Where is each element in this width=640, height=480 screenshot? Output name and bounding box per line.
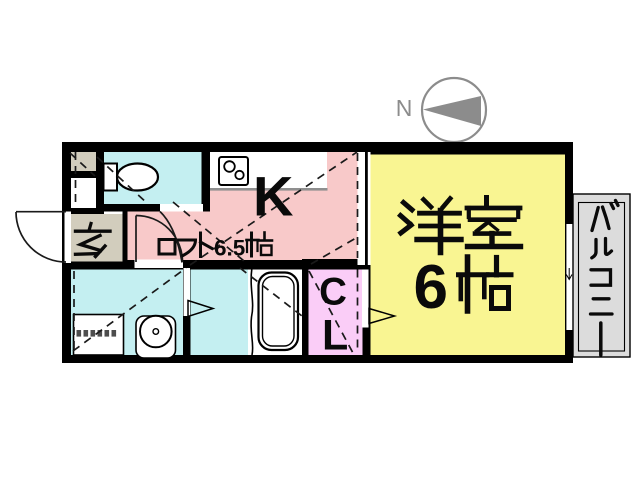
svg-text:N: N: [396, 95, 413, 121]
svg-text:6.5: 6.5: [214, 236, 245, 261]
svg-text:L: L: [322, 312, 348, 360]
svg-text:6: 6: [414, 253, 448, 322]
svg-text:C: C: [319, 271, 347, 314]
svg-text:K: K: [253, 165, 293, 228]
